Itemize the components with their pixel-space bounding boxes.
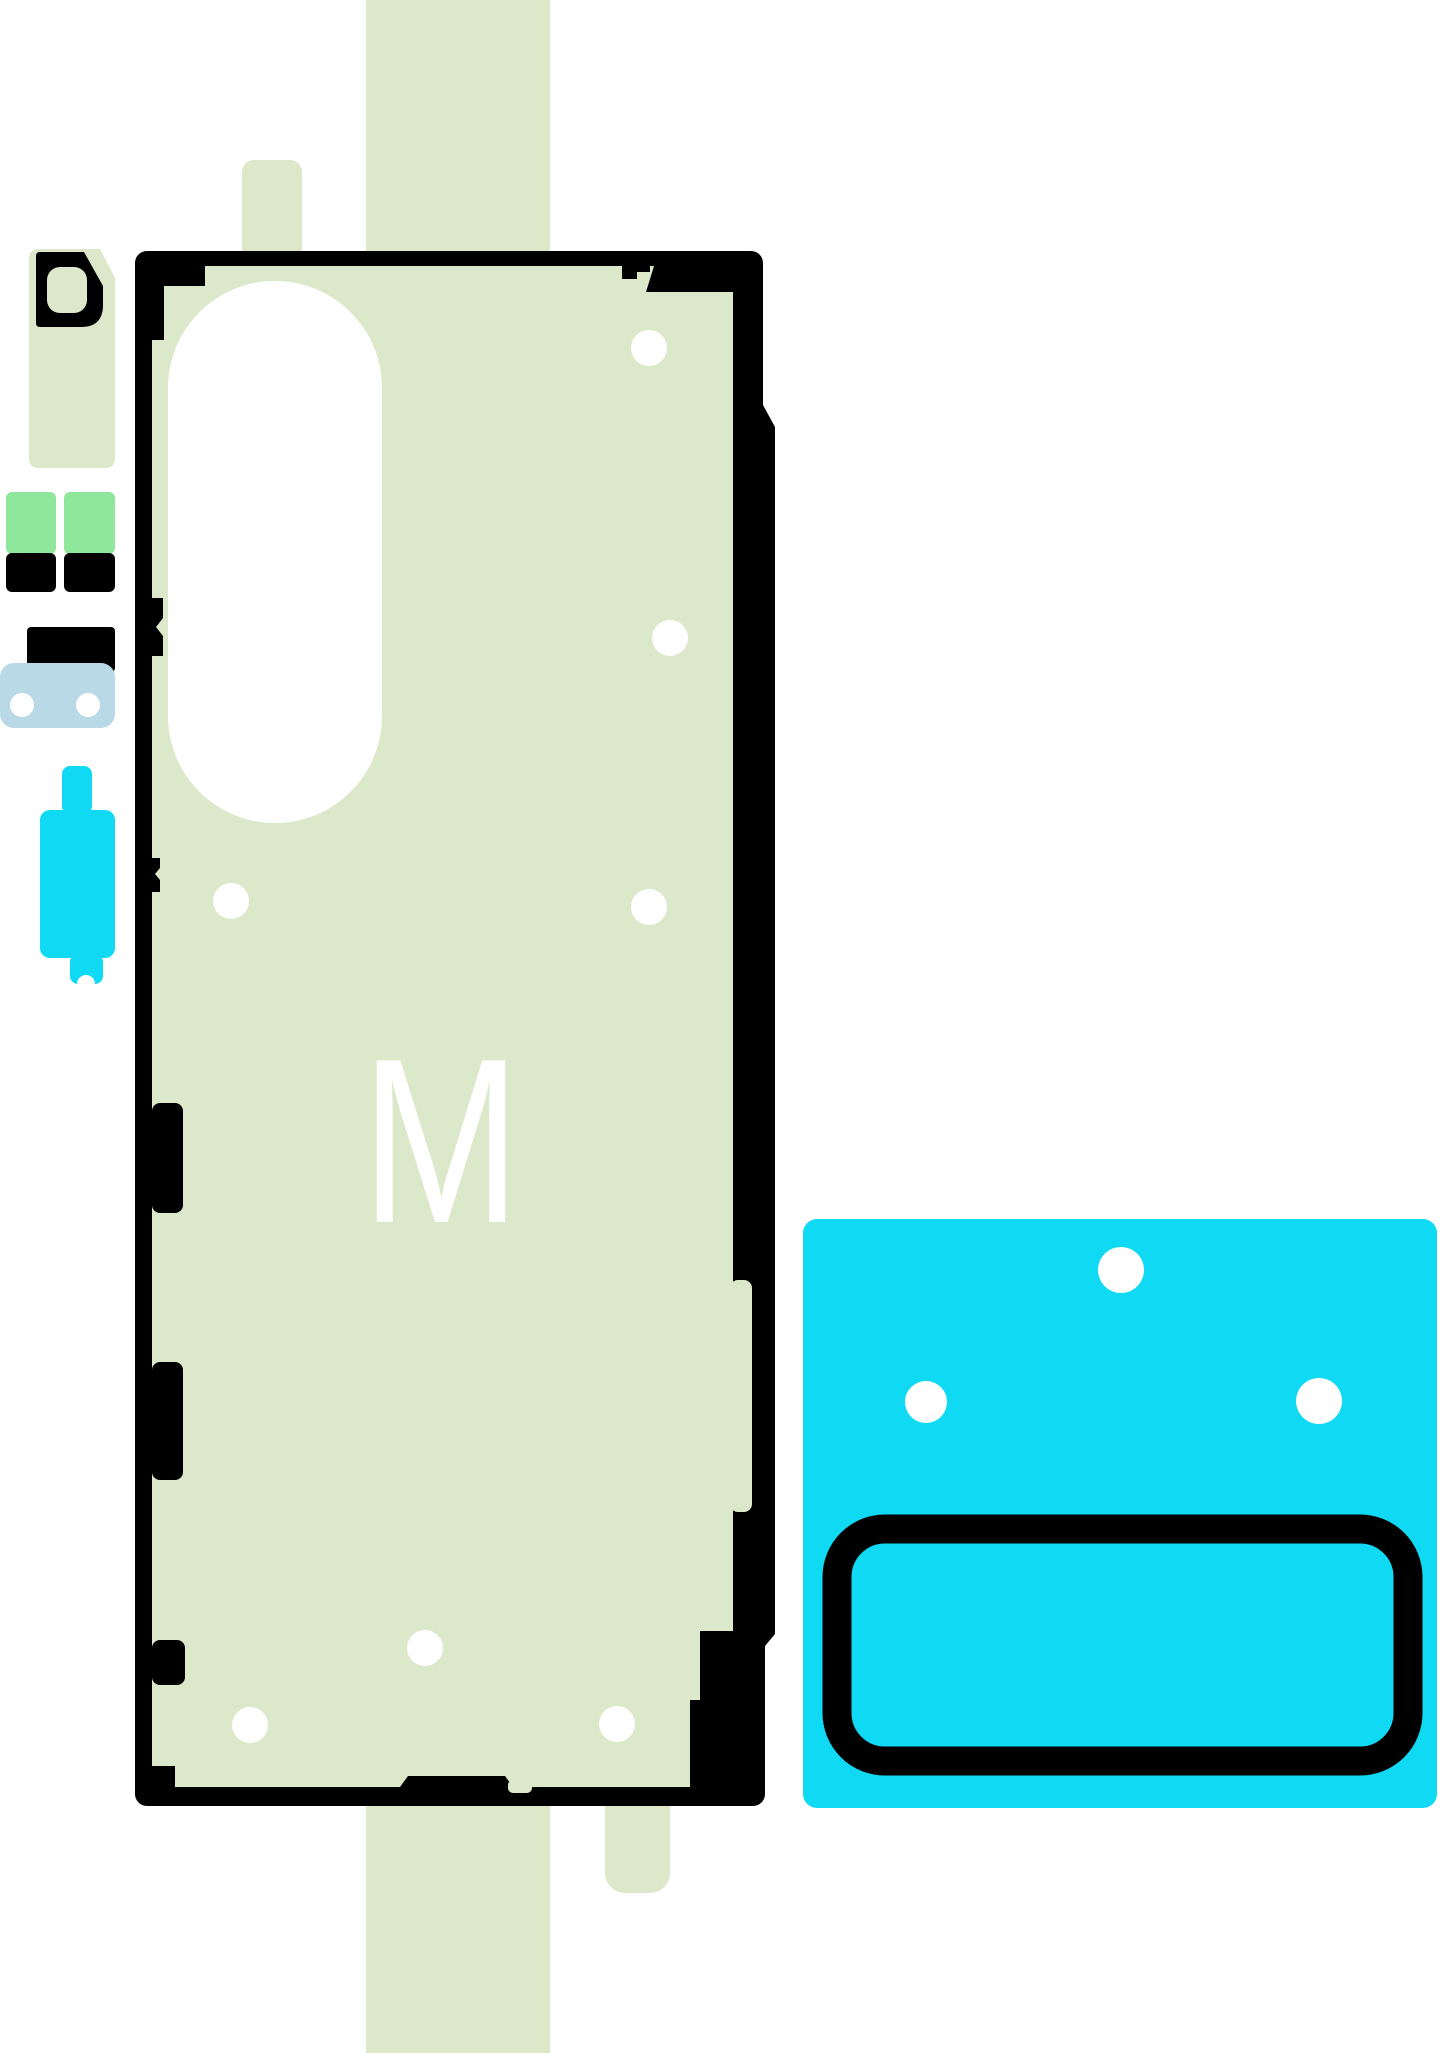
camera-bracket-hole bbox=[47, 267, 87, 313]
pad-adhesives-black bbox=[6, 553, 115, 592]
right-edge-pocket bbox=[730, 1280, 752, 1512]
key-adhesive-body bbox=[40, 810, 115, 958]
sensor-hole bbox=[76, 693, 100, 717]
adhesive-kit-illustration: M bbox=[0, 0, 1445, 2053]
alignment-hole bbox=[213, 883, 249, 919]
alignment-hole bbox=[599, 1706, 635, 1742]
pad-backing-left bbox=[6, 553, 56, 592]
alignment-hole bbox=[631, 330, 667, 366]
sensor-hole bbox=[10, 693, 34, 717]
pad-adhesives-green bbox=[6, 492, 115, 554]
alignment-hole bbox=[1296, 1378, 1342, 1424]
key-adhesive-top-tab bbox=[62, 766, 92, 814]
back-cover-adhesive-main: M bbox=[135, 251, 775, 1806]
bottom-edge-pocket bbox=[508, 1780, 532, 1793]
pad-backing-right bbox=[64, 553, 115, 592]
main-adhesive-label: M bbox=[361, 1009, 521, 1272]
key-adhesive-cyan bbox=[40, 766, 115, 984]
small-parts-column bbox=[0, 249, 115, 993]
alignment-hole bbox=[1098, 1247, 1144, 1293]
alignment-hole bbox=[407, 1630, 443, 1666]
alignment-hole bbox=[905, 1381, 947, 1423]
pad-adhesive-left bbox=[6, 492, 56, 554]
alignment-hole bbox=[232, 1707, 268, 1743]
pad-adhesive-right bbox=[64, 492, 115, 554]
alignment-hole bbox=[652, 620, 688, 656]
speaker-adhesive-sheet bbox=[803, 1219, 1437, 1808]
speaker-adhesive-cyan bbox=[803, 1219, 1437, 1808]
alignment-hole bbox=[631, 889, 667, 925]
key-adhesive-notch bbox=[77, 975, 95, 993]
camera-window-cutout bbox=[168, 281, 382, 823]
